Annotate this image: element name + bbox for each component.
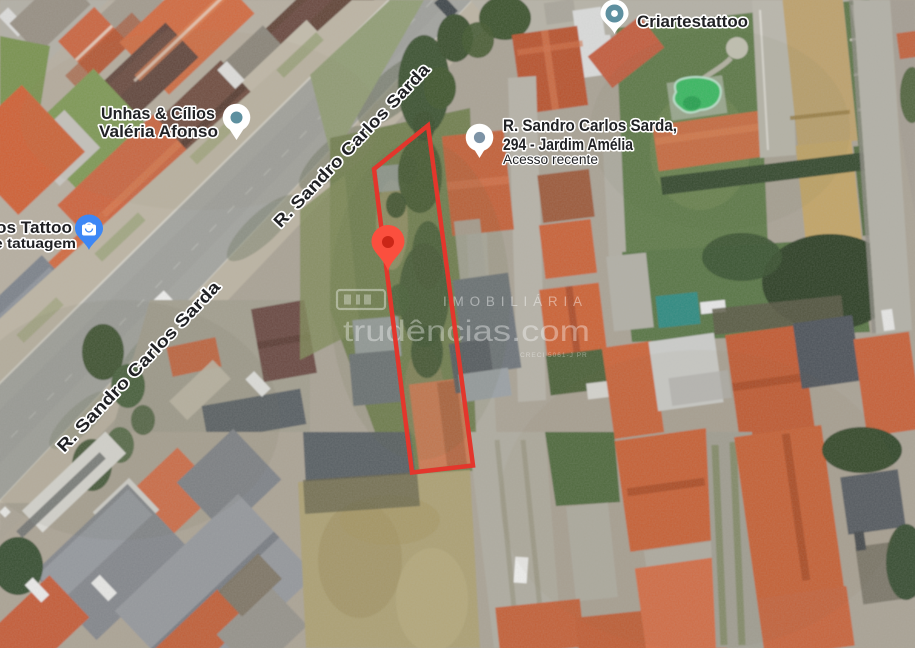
svg-text:Unhas & Cílios: Unhas & Cílios: [101, 104, 215, 123]
svg-text:IMOBILIÁRIA: IMOBILIÁRIA: [443, 294, 588, 309]
svg-text:e tatuagem: e tatuagem: [0, 235, 76, 251]
svg-text:CRECI 5061-J PR: CRECI 5061-J PR: [520, 352, 588, 359]
svg-text:Valéria Afonso: Valéria Afonso: [99, 122, 218, 141]
svg-text:Criartestattoo: Criartestattoo: [637, 13, 748, 31]
svg-text:R. Sandro Carlos Sarda,: R. Sandro Carlos Sarda,: [503, 117, 677, 135]
svg-text:Acesso recente: Acesso recente: [503, 152, 598, 167]
svg-text:trudências.com: trudências.com: [343, 315, 590, 348]
